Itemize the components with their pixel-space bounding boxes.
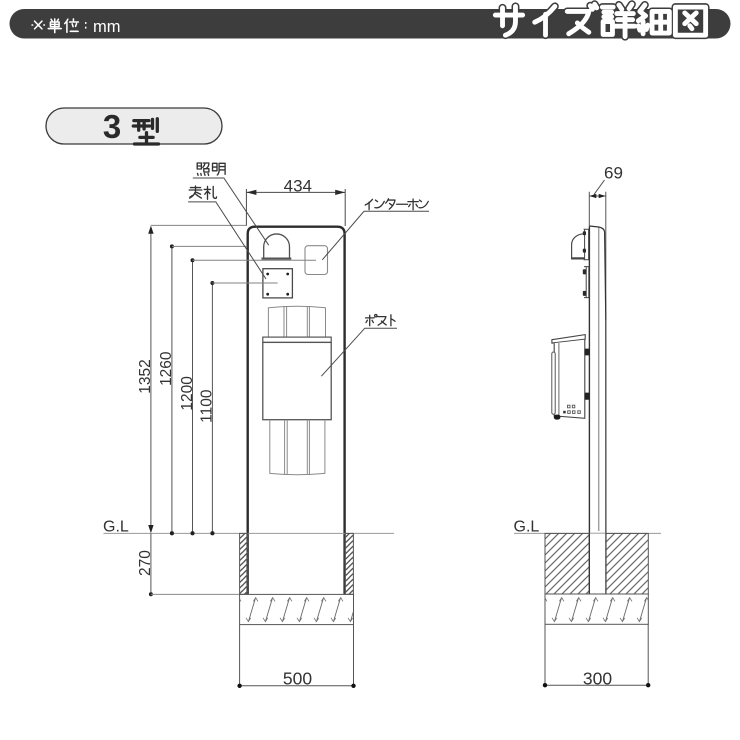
svg-text:1200: 1200 bbox=[179, 376, 196, 411]
svg-text:270: 270 bbox=[137, 550, 154, 576]
svg-text:1260: 1260 bbox=[158, 351, 175, 386]
svg-text:434: 434 bbox=[284, 176, 312, 195]
svg-text:300: 300 bbox=[583, 668, 612, 688]
svg-text:1100: 1100 bbox=[199, 389, 216, 423]
svg-text:3: 3 bbox=[103, 108, 121, 145]
svg-text:mm: mm bbox=[93, 18, 121, 36]
svg-text:1352: 1352 bbox=[137, 359, 154, 393]
svg-text:69: 69 bbox=[604, 163, 623, 182]
svg-text:500: 500 bbox=[283, 668, 312, 688]
